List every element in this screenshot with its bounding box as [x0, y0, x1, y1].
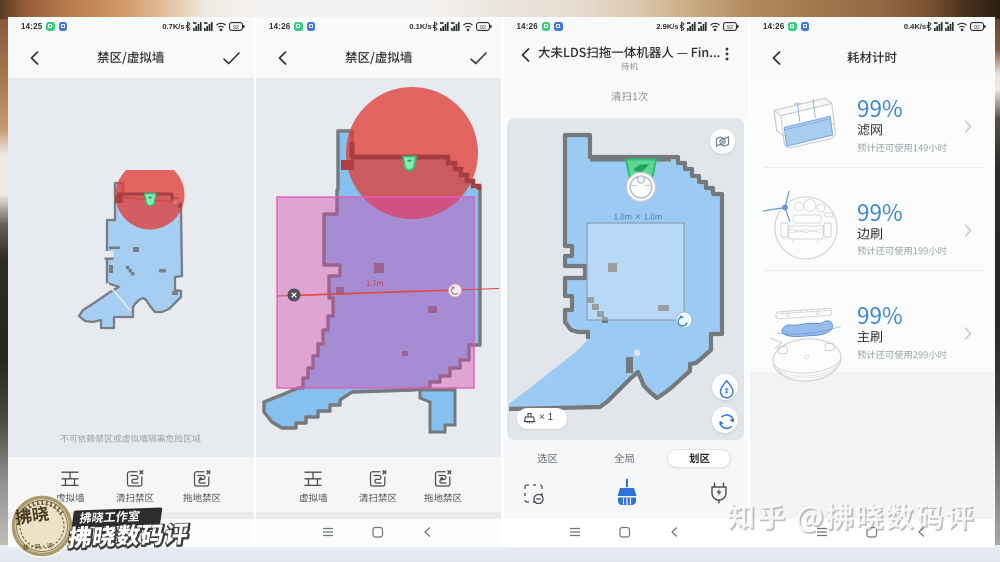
svg-text:92: 92: [727, 25, 733, 31]
svg-text:92: 92: [974, 25, 980, 31]
svg-text:92: 92: [233, 25, 239, 31]
svg-text:92: 92: [480, 25, 486, 31]
